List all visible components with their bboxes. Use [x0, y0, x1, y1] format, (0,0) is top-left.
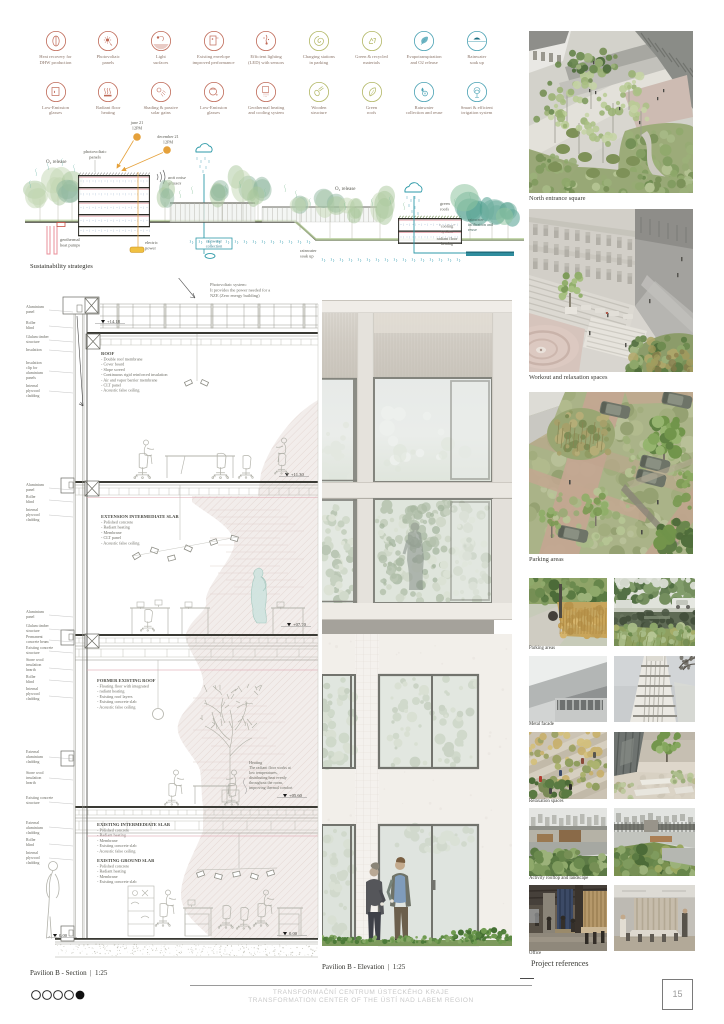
- svg-text:aluminium: aluminium: [26, 755, 43, 759]
- svg-text:ROOF: ROOF: [101, 351, 114, 356]
- svg-text:- Acoustic false ceiling: - Acoustic false ceiling: [101, 388, 140, 393]
- svg-text:Aluminium: Aluminium: [26, 483, 44, 487]
- svg-text:blind: blind: [26, 326, 34, 330]
- svg-text:Pavilion B - Elevation | 1:2: Pavilion B - Elevation | 1:25: [322, 963, 406, 971]
- svg-text:plywood: plywood: [26, 513, 40, 517]
- svg-text:collection: collection: [206, 244, 223, 249]
- svg-text:+11.30: +11.30: [291, 472, 304, 477]
- svg-text:photovoltaic: photovoltaic: [84, 149, 107, 154]
- svg-text:roofs: roofs: [440, 207, 449, 212]
- svg-text:External: External: [26, 750, 39, 754]
- svg-text:EXISTING GROUND SLAB: EXISTING GROUND SLAB: [97, 858, 154, 863]
- svg-text:structure: structure: [26, 651, 40, 655]
- svg-text:concrete beam: concrete beam: [26, 640, 49, 644]
- svg-text:Roller: Roller: [26, 495, 36, 499]
- svg-text:cladding: cladding: [26, 697, 39, 701]
- svg-text:Stone wool: Stone wool: [26, 771, 44, 775]
- svg-text:hearth: hearth: [26, 781, 36, 785]
- svg-text:It provides the power needed f: It provides the power needed for a: [210, 288, 270, 293]
- svg-text:panels: panels: [26, 376, 36, 380]
- svg-text:system: system: [441, 229, 453, 234]
- svg-text:0.00: 0.00: [59, 933, 68, 938]
- svg-text:electric: electric: [145, 240, 158, 245]
- svg-text:heat pumps: heat pumps: [60, 243, 80, 248]
- svg-text:Aluminium: Aluminium: [26, 305, 44, 309]
- svg-text:+07.70: +07.70: [293, 622, 307, 627]
- svg-text:panel: panel: [26, 310, 34, 314]
- svg-text:plywood: plywood: [26, 856, 40, 860]
- svg-text:EXTENSION INTERMEDIATE SLAB: EXTENSION INTERMEDIATE SLAB: [101, 514, 179, 519]
- svg-text:Insulation: Insulation: [26, 348, 42, 352]
- svg-text:Existing concrete: Existing concrete: [26, 796, 53, 800]
- svg-text:+05.60: +05.60: [289, 793, 303, 798]
- svg-text:heating: heating: [441, 241, 454, 246]
- svg-text:december 21: december 21: [157, 134, 179, 139]
- svg-text:structure: structure: [26, 801, 40, 805]
- svg-text:EXISTING INTERMEDIATE SLAB: EXISTING INTERMEDIATE SLAB: [97, 822, 170, 827]
- svg-text:Internal: Internal: [26, 851, 38, 855]
- svg-text:Glulam timber: Glulam timber: [26, 335, 50, 339]
- svg-text:External: External: [26, 821, 39, 825]
- svg-text:insulation: insulation: [26, 663, 41, 667]
- svg-text:O₂ release: O₂ release: [46, 160, 67, 165]
- svg-text:- Acoustic false ceiling: - Acoustic false ceiling: [101, 540, 140, 545]
- svg-text:june 21: june 21: [130, 120, 143, 125]
- svg-text:- Acoustic false ceiling: - Acoustic false ceiling: [97, 848, 136, 853]
- svg-text:12PM: 12PM: [132, 126, 143, 131]
- svg-text:FORMER EXISTING ROOF: FORMER EXISTING ROOF: [97, 678, 156, 683]
- svg-text:cladding: cladding: [26, 831, 39, 835]
- svg-text:NZE (Zero energy building): NZE (Zero energy building): [210, 293, 260, 298]
- svg-text:improving thermal comfort: improving thermal comfort: [249, 785, 293, 790]
- svg-text:aluminium: aluminium: [26, 371, 43, 375]
- svg-text:O₂ release: O₂ release: [335, 187, 356, 192]
- svg-text:blind: blind: [26, 843, 34, 847]
- svg-text:Internal: Internal: [26, 687, 38, 691]
- svg-text:0.00: 0.00: [289, 931, 298, 936]
- svg-text:Internal: Internal: [26, 384, 38, 388]
- svg-text:Permanent: Permanent: [26, 635, 44, 639]
- svg-text:reuse: reuse: [468, 227, 477, 232]
- svg-text:Existing concrete: Existing concrete: [26, 646, 53, 650]
- svg-text:- Existing concrete slab: - Existing concrete slab: [97, 879, 136, 884]
- svg-text:rainwater: rainwater: [300, 248, 317, 253]
- svg-text:Glulam timber: Glulam timber: [26, 624, 50, 628]
- svg-text:Roller: Roller: [26, 838, 36, 842]
- svg-text:soak up: soak up: [300, 254, 314, 259]
- svg-text:panel: panel: [26, 488, 34, 492]
- svg-text:power: power: [145, 246, 157, 251]
- svg-text:Photovoltaic system:: Photovoltaic system:: [210, 282, 247, 287]
- svg-text:Internal: Internal: [26, 508, 38, 512]
- svg-text:- Acoustic false ceiling: - Acoustic false ceiling: [97, 704, 136, 709]
- svg-text:plywood: plywood: [26, 389, 40, 393]
- svg-text:clip for: clip for: [26, 366, 38, 370]
- svg-text:blind: blind: [26, 500, 34, 504]
- svg-text:Roller: Roller: [26, 675, 36, 679]
- svg-text:geothermal: geothermal: [60, 237, 81, 242]
- svg-text:12PM: 12PM: [163, 140, 174, 145]
- svg-text:green: green: [440, 201, 451, 206]
- svg-text:Aluminium: Aluminium: [26, 610, 44, 614]
- svg-text:blind: blind: [26, 680, 34, 684]
- svg-text:+14.18: +14.18: [107, 319, 121, 324]
- svg-text:anti noise: anti noise: [168, 175, 186, 180]
- svg-text:panel: panel: [26, 615, 34, 619]
- svg-text:structure: structure: [26, 629, 40, 633]
- svg-text:Stone wool: Stone wool: [26, 658, 44, 662]
- svg-text:cladding: cladding: [26, 518, 39, 522]
- svg-text:cladding: cladding: [26, 760, 39, 764]
- svg-text:panels: panels: [89, 155, 101, 160]
- svg-text:cladding: cladding: [26, 394, 39, 398]
- svg-text:Sustainability strategies: Sustainability strategies: [30, 263, 93, 270]
- svg-text:cladding: cladding: [26, 861, 39, 865]
- svg-text:hearth: hearth: [26, 668, 36, 672]
- svg-text:aluminium: aluminium: [26, 826, 43, 830]
- svg-text:Insulation: Insulation: [26, 361, 42, 365]
- svg-text:Roller: Roller: [26, 321, 36, 325]
- svg-text:structure: structure: [26, 340, 40, 344]
- svg-text:plywood: plywood: [26, 692, 40, 696]
- svg-text:insulation: insulation: [26, 776, 41, 780]
